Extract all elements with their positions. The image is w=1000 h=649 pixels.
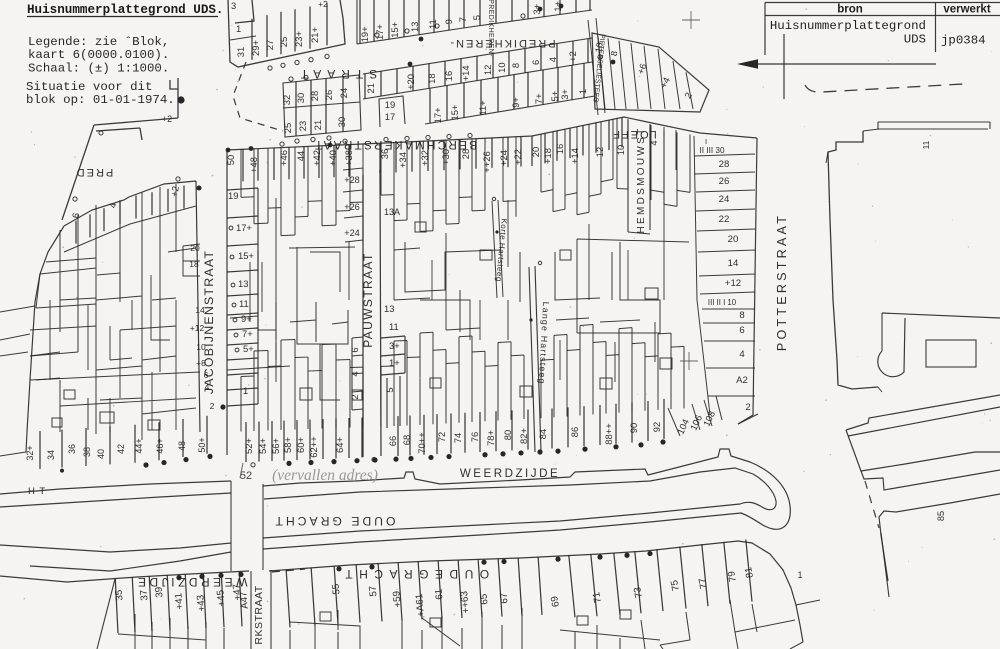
svg-text:19: 19 [385, 99, 395, 110]
svg-text:+43: +43 [195, 594, 207, 612]
svg-text:5: 5 [384, 387, 395, 392]
svg-text:58+: 58+ [282, 437, 293, 453]
svg-text:44: 44 [295, 151, 306, 161]
svg-text:60+: 60+ [295, 437, 306, 453]
svg-text:15+: 15+ [389, 21, 400, 37]
svg-text:52+: 52+ [243, 438, 254, 454]
svg-text:90: 90 [628, 423, 639, 433]
svg-text:7+: 7+ [242, 328, 253, 339]
svg-text:Schaal: (±) 1:1000.: Schaal: (±) 1:1000. [28, 61, 169, 75]
svg-text:4: 4 [547, 57, 558, 62]
svg-text:POTTERSTRAAT: POTTERSTRAAT [775, 213, 789, 351]
svg-text:25: 25 [282, 123, 293, 133]
svg-text:II III 30: II III 30 [699, 146, 724, 155]
svg-text:+38: +38 [343, 150, 354, 166]
svg-text:6: 6 [349, 347, 360, 352]
svg-text:(vervallen adres): (vervallen adres) [272, 467, 378, 484]
svg-text:36: 36 [67, 444, 77, 454]
svg-text:1: 1 [243, 385, 248, 396]
svg-text:76: 76 [469, 432, 480, 442]
svg-text:A2: A2 [736, 375, 748, 386]
svg-text:79: 79 [726, 570, 739, 583]
svg-text:PREDIKHEREN-: PREDIKHEREN- [448, 37, 555, 49]
svg-text:20: 20 [530, 147, 541, 157]
svg-text:81: 81 [743, 566, 756, 579]
svg-text:18: 18 [426, 73, 437, 83]
svg-text:64+: 64+ [334, 437, 345, 453]
svg-text:21+: 21+ [309, 27, 320, 43]
svg-text:56+: 56+ [270, 438, 281, 454]
svg-text:15+: 15+ [238, 250, 254, 261]
svg-text:+2: +2 [162, 114, 172, 124]
svg-text:++63: ++63 [459, 590, 472, 614]
svg-text:1: 1 [236, 23, 241, 34]
svg-text:UDS: UDS [904, 33, 926, 47]
svg-text:26: 26 [323, 90, 334, 100]
svg-text:19: 19 [228, 190, 238, 201]
svg-text:3+: 3+ [389, 340, 400, 351]
svg-text:29+: 29+ [250, 40, 261, 56]
svg-text:17+: 17+ [374, 24, 385, 40]
svg-text:8: 8 [739, 310, 744, 321]
svg-text:80: 80 [502, 430, 513, 440]
svg-text:HEMDSMOUWST: HEMDSMOUWST [636, 127, 647, 234]
svg-text:PRED: PRED [75, 166, 114, 178]
svg-text:82+: 82+ [518, 428, 529, 444]
svg-text:Legende: zie ˆBlok,: Legende: zie ˆBlok, [28, 35, 169, 49]
svg-text:24: 24 [719, 194, 730, 205]
svg-text:III II I 10: III II I 10 [708, 298, 737, 307]
svg-text:2: 2 [349, 394, 360, 399]
svg-text:17+: 17+ [236, 222, 252, 233]
svg-text:69: 69 [549, 595, 562, 608]
svg-text:+12: +12 [725, 278, 741, 289]
svg-text:25: 25 [278, 37, 289, 47]
svg-text:42: 42 [116, 444, 126, 454]
svg-text:13: 13 [409, 22, 420, 32]
svg-text:11: 11 [389, 321, 399, 332]
svg-text:JACOBIJNENSTRAAT: JACOBIJNENSTRAAT [202, 250, 216, 394]
svg-text:Huisnummerplattegrond: Huisnummerplattegrond [770, 19, 926, 33]
svg-text:10: 10 [496, 62, 507, 72]
svg-text:17+: 17+ [432, 107, 443, 123]
svg-text:26: 26 [719, 176, 730, 187]
svg-text:12: 12 [482, 65, 493, 75]
svg-text:5: 5 [471, 15, 482, 20]
svg-text:+46: +46 [278, 150, 289, 166]
svg-text:+42: +42 [311, 150, 322, 166]
svg-text:+59: +59 [391, 590, 403, 608]
svg-text:OUDE GRACHT: OUDE GRACHT [272, 514, 395, 528]
svg-text:27: 27 [264, 40, 275, 50]
svg-text:+18: +18 [542, 148, 553, 164]
svg-text:kaart 6(0000.0100).: kaart 6(0000.0100). [28, 48, 169, 62]
svg-text:13: 13 [384, 303, 394, 314]
svg-text:24: 24 [338, 88, 349, 98]
svg-text:85: 85 [936, 511, 946, 521]
svg-text:65: 65 [479, 593, 491, 605]
svg-text:bron: bron [837, 3, 863, 15]
svg-text:31: 31 [235, 47, 246, 57]
svg-text:6: 6 [530, 60, 541, 65]
svg-text:Situatie voor dit: Situatie voor dit [26, 80, 152, 94]
svg-text:67: 67 [499, 592, 511, 604]
svg-text:7+: 7+ [533, 93, 544, 104]
svg-text:A47: A47 [238, 591, 250, 609]
svg-text:28: 28 [309, 91, 320, 101]
svg-text:2: 2 [210, 401, 215, 411]
svg-text:3: 3 [231, 0, 236, 11]
svg-text:1: 1 [797, 570, 802, 580]
svg-text:8: 8 [510, 63, 521, 68]
svg-text:2: 2 [745, 402, 750, 413]
svg-text:+2: +2 [168, 185, 181, 197]
svg-text:54+: 54+ [257, 438, 268, 454]
svg-text:+14: +14 [569, 148, 580, 164]
svg-text:38: 38 [82, 447, 92, 457]
svg-text:50+: 50+ [197, 437, 207, 452]
svg-text:+28: +28 [344, 175, 360, 185]
svg-text:21: 21 [312, 120, 323, 130]
svg-text:blok op: 01-01-1974.: blok op: 01-01-1974. [26, 93, 175, 107]
svg-text:PAUWSTRAAT: PAUWSTRAAT [361, 252, 375, 348]
svg-text:+22: +22 [512, 149, 523, 165]
svg-text:16: 16 [443, 71, 454, 81]
svg-text:23: 23 [297, 121, 308, 131]
svg-text:10: 10 [593, 42, 605, 54]
svg-text:WEERDZIJDE: WEERDZIJDE [460, 467, 560, 480]
svg-text:57: 57 [368, 585, 380, 597]
svg-text:70++: 70++ [416, 432, 427, 454]
svg-text:17: 17 [385, 111, 395, 122]
svg-text:86: 86 [569, 427, 580, 437]
svg-text:68: 68 [401, 435, 412, 445]
svg-text:+14: +14 [460, 65, 471, 81]
svg-text:+24: +24 [344, 228, 360, 238]
svg-text:15+: 15+ [449, 104, 460, 120]
svg-text:+41: +41 [173, 592, 185, 610]
svg-text:+2: +2 [567, 51, 578, 62]
svg-text:21: 21 [365, 83, 376, 93]
svg-text:32+: 32+ [25, 445, 35, 460]
svg-text:13A: 13A [384, 207, 400, 217]
svg-text:Huisnummerplattegrond UDS.: Huisnummerplattegrond UDS. [27, 3, 224, 17]
svg-text:35: 35 [114, 589, 126, 601]
svg-text:23+: 23+ [293, 31, 304, 47]
svg-text:+2: +2 [318, 0, 328, 9]
svg-text:++26: ++26 [481, 151, 492, 172]
svg-text:61: 61 [434, 588, 446, 600]
svg-text:RKSTRAAT: RKSTRAAT [253, 585, 265, 644]
svg-text:+26: +26 [344, 202, 360, 212]
svg-text:71: 71 [591, 591, 604, 604]
svg-text:22: 22 [719, 214, 730, 225]
svg-text:11: 11 [239, 298, 249, 309]
svg-text:9: 9 [443, 19, 454, 24]
svg-text:9+: 9+ [510, 97, 521, 108]
svg-text:5+: 5+ [243, 343, 254, 354]
svg-text:37: 37 [139, 589, 151, 601]
svg-text:16: 16 [554, 144, 565, 154]
svg-text:30: 30 [295, 93, 306, 103]
svg-text:62++: 62++ [308, 436, 319, 458]
svg-text:20: 20 [728, 234, 739, 245]
svg-text:55: 55 [331, 583, 343, 595]
svg-text:7: 7 [457, 17, 468, 22]
svg-text:46+: 46+ [155, 438, 165, 453]
svg-text:14: 14 [728, 258, 739, 269]
svg-text:+A61: +A61 [414, 593, 427, 617]
svg-text:6: 6 [739, 325, 744, 336]
svg-text:48: 48 [177, 441, 187, 451]
svg-text:92: 92 [651, 422, 662, 432]
svg-text:39: 39 [154, 586, 166, 598]
svg-text:+20: +20 [405, 74, 416, 90]
svg-text:verwerkt: verwerkt [943, 3, 990, 15]
svg-text:jp0384: jp0384 [941, 34, 986, 48]
svg-text:66: 66 [387, 436, 398, 446]
svg-text:11+: 11+ [477, 100, 488, 116]
svg-text:28: 28 [719, 159, 730, 170]
svg-text:40: 40 [96, 449, 106, 459]
svg-text:50: 50 [225, 155, 236, 165]
svg-text:84: 84 [537, 429, 548, 439]
svg-text:88++: 88++ [603, 423, 614, 445]
svg-text:77: 77 [697, 577, 710, 590]
svg-text:74: 74 [452, 433, 463, 443]
svg-text:4: 4 [739, 349, 745, 360]
svg-text:72: 72 [436, 432, 447, 442]
svg-text:78+: 78+ [485, 430, 496, 446]
svg-text:11: 11 [921, 140, 931, 149]
svg-text:13: 13 [238, 278, 248, 289]
svg-text:44+: 44+ [134, 438, 144, 453]
svg-text:28: 28 [460, 149, 471, 159]
svg-text:+32: +32 [419, 150, 430, 166]
svg-text:32: 32 [281, 95, 292, 105]
svg-text:I: I [705, 137, 707, 146]
svg-text:+34: +34 [397, 152, 408, 168]
svg-text:12: 12 [594, 147, 605, 157]
svg-text:3+: 3+ [559, 89, 570, 100]
svg-text:1: 1 [577, 89, 588, 94]
svg-text:OUDEGRACHT: OUDEGRACHT [339, 567, 489, 581]
svg-text:19+: 19+ [359, 26, 370, 42]
svg-text:34: 34 [46, 450, 56, 460]
svg-text:9+: 9+ [241, 313, 252, 324]
svg-text:30: 30 [336, 117, 347, 127]
svg-text:+45: +45 [215, 589, 227, 607]
